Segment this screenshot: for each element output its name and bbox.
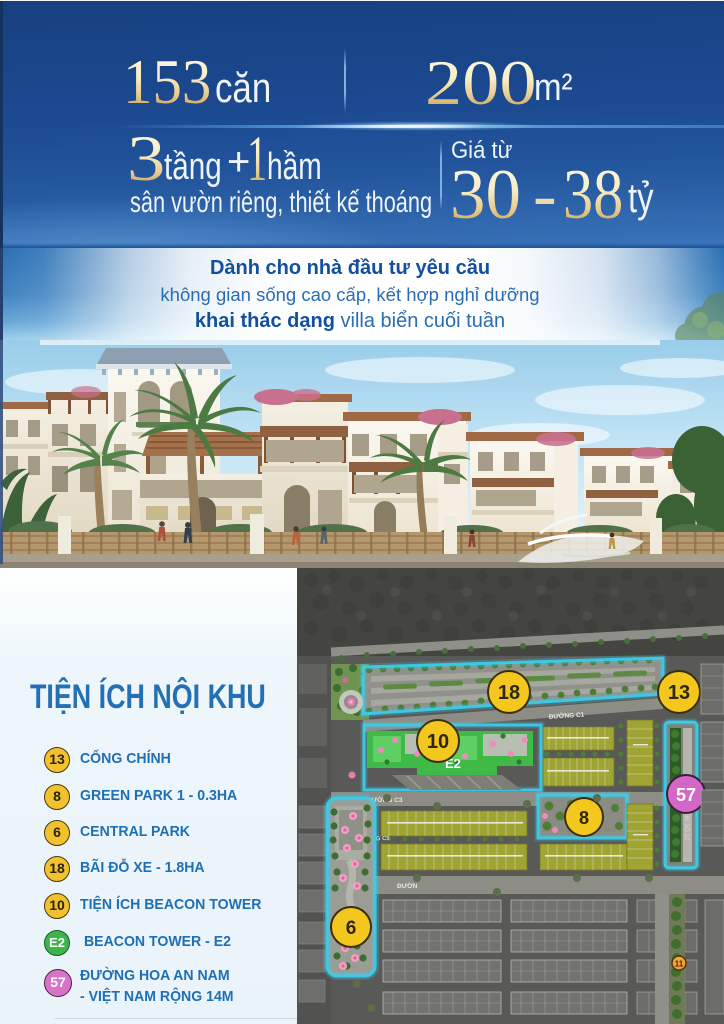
- svg-text:11: 11: [675, 960, 684, 969]
- svg-text:18: 18: [498, 682, 520, 704]
- svg-text:13: 13: [668, 682, 690, 704]
- svg-text:ĐƯỜN: ĐƯỜN: [397, 881, 418, 890]
- svg-text:8: 8: [579, 808, 589, 828]
- svg-text:57: 57: [676, 785, 696, 805]
- svg-text:10: 10: [427, 731, 449, 753]
- svg-text:6: 6: [346, 918, 357, 939]
